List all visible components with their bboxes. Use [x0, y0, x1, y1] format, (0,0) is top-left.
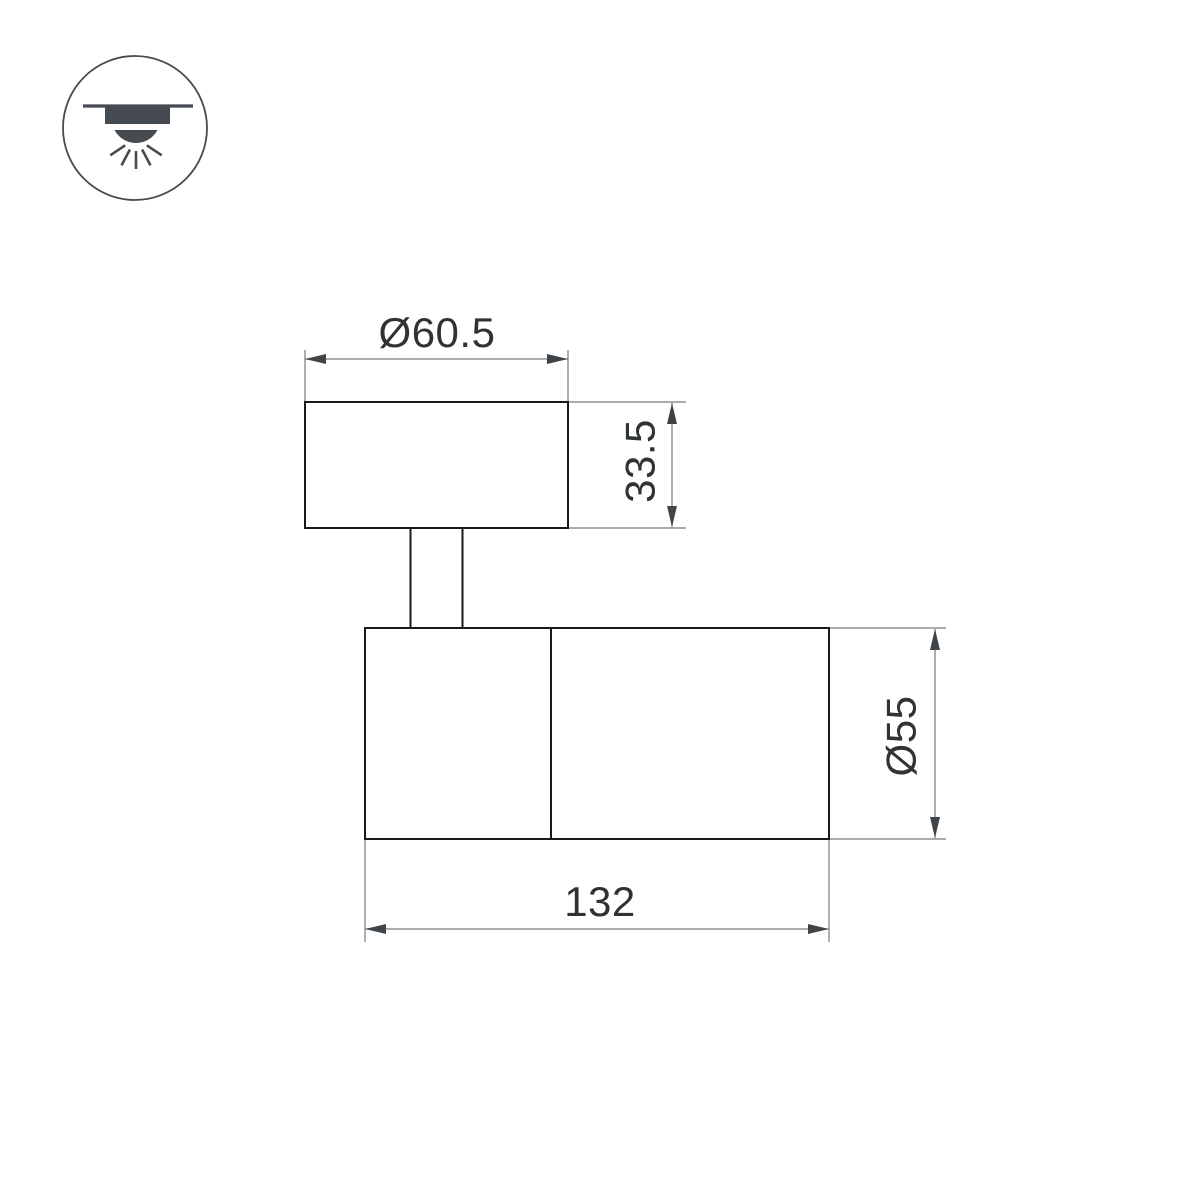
- dim-body-diameter: Ø55: [830, 628, 946, 839]
- dim-body-length-label: 132: [564, 878, 636, 925]
- dim-body-diameter-arrow-bottom: [930, 817, 940, 838]
- icon-ray-5: [147, 145, 162, 155]
- dim-cap-diameter-arrow-right: [547, 354, 568, 364]
- dim-cap-diameter: Ø60.5: [305, 309, 568, 401]
- dim-cap-diameter-label: Ø60.5: [379, 309, 496, 356]
- dim-body-diameter-arrow-top: [930, 629, 940, 650]
- dim-cap-height-label: 33.5: [617, 419, 664, 503]
- dim-cap-height-arrow-bottom: [667, 506, 677, 527]
- luminaire-outline: [305, 402, 829, 839]
- icon-ray-4: [142, 150, 150, 166]
- dim-body-length-arrow-right: [808, 924, 829, 934]
- dim-cap-height-arrow-top: [667, 403, 677, 424]
- dim-cap-diameter-arrow-left: [305, 354, 326, 364]
- mount-cap-outline: [305, 402, 568, 528]
- icon-light-rays: [110, 145, 161, 169]
- icon-ray-1: [110, 145, 125, 155]
- icon-light-dome: [115, 130, 158, 143]
- icon-fixture-body: [105, 105, 170, 124]
- ceiling-mount-icon: [63, 56, 207, 200]
- dimension-drawing-canvas: Ø60.5 33.5 Ø55 132: [0, 0, 1200, 1200]
- icon-circle: [63, 56, 207, 200]
- dim-body-length: 132: [365, 840, 829, 942]
- dim-body-length-arrow-left: [365, 924, 386, 934]
- lamp-body-outline: [365, 628, 829, 839]
- dim-cap-height: 33.5: [569, 402, 686, 528]
- icon-ray-2: [122, 150, 130, 166]
- technical-drawing: Ø60.5 33.5 Ø55 132: [0, 0, 1200, 1200]
- dim-body-diameter-label: Ø55: [878, 696, 925, 777]
